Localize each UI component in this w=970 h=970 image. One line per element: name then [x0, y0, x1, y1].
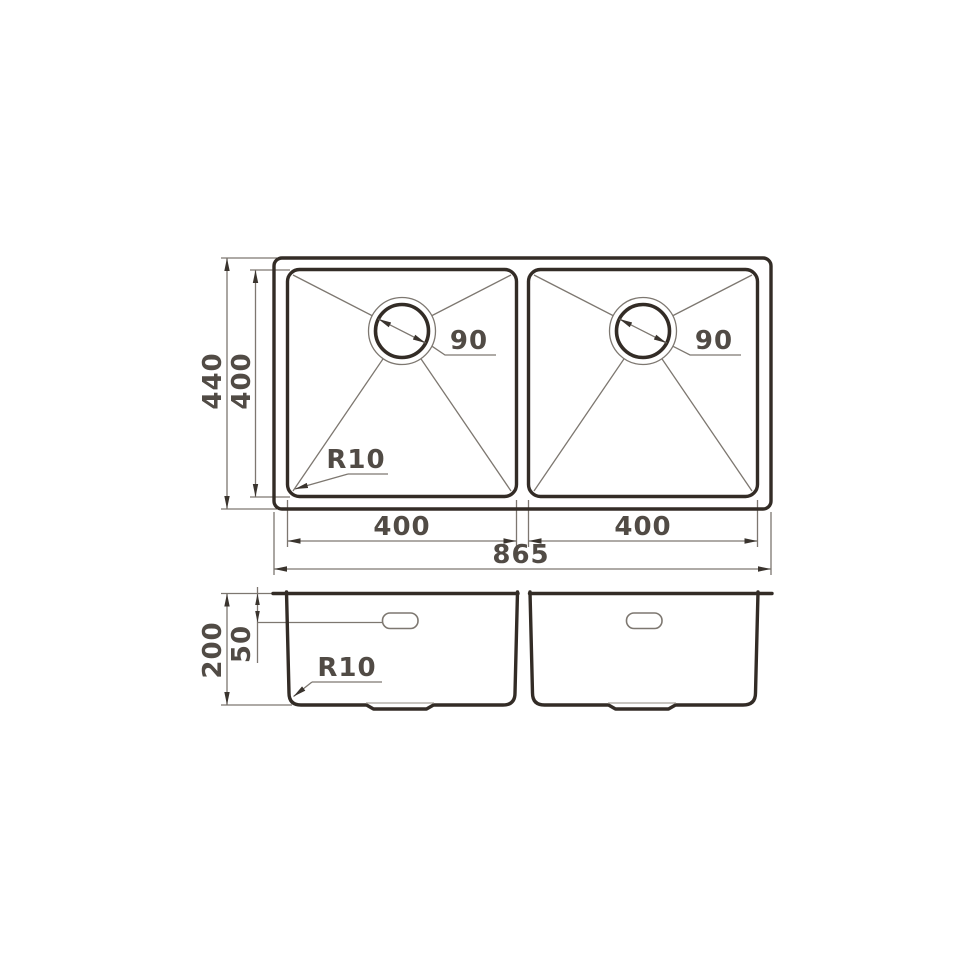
top-view: 440 400 400 400 865 90 90 R10	[198, 258, 771, 575]
label-overall-height: 200	[198, 621, 228, 678]
side-view-leaders	[294, 682, 383, 697]
top-view-thin-lines	[221, 258, 771, 575]
sink-technical-drawing: 440 400 400 400 865 90 90 R10	[0, 0, 970, 970]
side-view: 200 50 R10	[198, 587, 772, 709]
label-bowl-depth: 400	[227, 352, 257, 409]
bowl-left-profile	[287, 592, 518, 709]
overflow-hole-left	[383, 613, 419, 629]
leader-corner-radius	[294, 682, 313, 697]
label-bowl-left-width: 400	[373, 512, 430, 542]
label-drain-left-diameter: 90	[450, 326, 488, 356]
label-bowl-right-width: 400	[614, 512, 671, 542]
drain-left	[369, 298, 436, 365]
label-overflow-offset: 50	[227, 625, 257, 663]
drain-right	[610, 298, 677, 365]
bowl-right-profile	[530, 592, 758, 709]
label-drain-right-diameter: 90	[695, 326, 733, 356]
overflow-hole-right	[627, 613, 663, 629]
label-corner-radius-side: R10	[317, 653, 376, 683]
drawing-canvas: 440 400 400 400 865 90 90 R10	[0, 0, 970, 970]
side-view-profile	[273, 592, 772, 709]
arrowhead-down	[255, 611, 260, 623]
label-overall-depth: 440	[198, 352, 228, 409]
label-overall-width: 865	[492, 540, 549, 570]
label-corner-radius-top: R10	[326, 445, 385, 475]
arrowhead-up	[255, 594, 260, 606]
